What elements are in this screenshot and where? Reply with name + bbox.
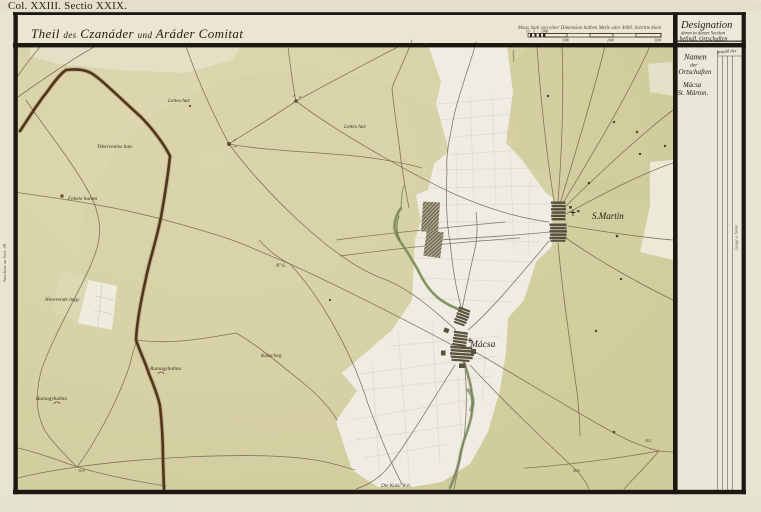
svg-text:30.9: 30.9 (78, 469, 85, 473)
svg-text:Col. XXIII. Sectio XXIX.: Col. XXIII. Sectio XXIX. (8, 0, 127, 12)
svg-text:St. Márton.: St. Márton. (678, 90, 709, 97)
svg-text:befindl. Ortschaften: befindl. Ortschaften (680, 35, 728, 42)
svg-text:2000: 2000 (607, 39, 614, 43)
svg-text:Die Kulsi W.h.: Die Kulsi W.h. (380, 483, 411, 489)
svg-text:5: 5 (533, 30, 535, 34)
svg-text:Theil des Czanáder und Aráder: Theil des Czanáder und Aráder Comitat (31, 26, 243, 41)
svg-text:10: 10 (526, 30, 530, 34)
svg-text:Lettes har.: Lettes har. (167, 98, 191, 104)
svg-text:Lange u. breite: Lange u. breite (734, 225, 739, 251)
svg-text:40.2: 40.2 (645, 439, 652, 443)
svg-text:S.Martin: S.Martin (592, 211, 624, 221)
svg-text:Ortschaften: Ortschaften (679, 68, 713, 76)
svg-text:Mácsa: Mácsa (682, 82, 702, 89)
svg-text:Fekete halom: Fekete halom (67, 196, 97, 202)
svg-text:1000: 1000 (541, 30, 548, 34)
svg-text:1000: 1000 (562, 39, 569, 43)
svg-text:Rumogyhalma: Rumogyhalma (35, 396, 67, 402)
svg-text:40.6: 40.6 (573, 469, 580, 473)
svg-text:Mácsa: Mácsa (469, 340, 496, 350)
svg-text:Neverende hegy: Neverende hegy (44, 297, 80, 303)
svg-text:Anschlus an Sect. 28: Anschlus an Sect. 28 (2, 243, 7, 283)
svg-text:Lettes har.: Lettes har. (343, 124, 367, 130)
svg-text:Rumogyhalma: Rumogyhalma (149, 366, 181, 372)
svg-text:Kutas heg.: Kutas heg. (260, 354, 282, 359)
svg-text:Namen: Namen (683, 53, 707, 62)
svg-text:Tekervenies han.: Tekervenies han. (97, 144, 133, 150)
svg-text:Designation: Designation (680, 20, 732, 31)
svg-text:3000: 3000 (654, 39, 661, 43)
svg-text:Nº 6.: Nº 6. (275, 263, 286, 269)
svg-text:Maas Stab von einer Dimension: Maas Stab von einer Dimension halben Mei… (517, 26, 662, 31)
